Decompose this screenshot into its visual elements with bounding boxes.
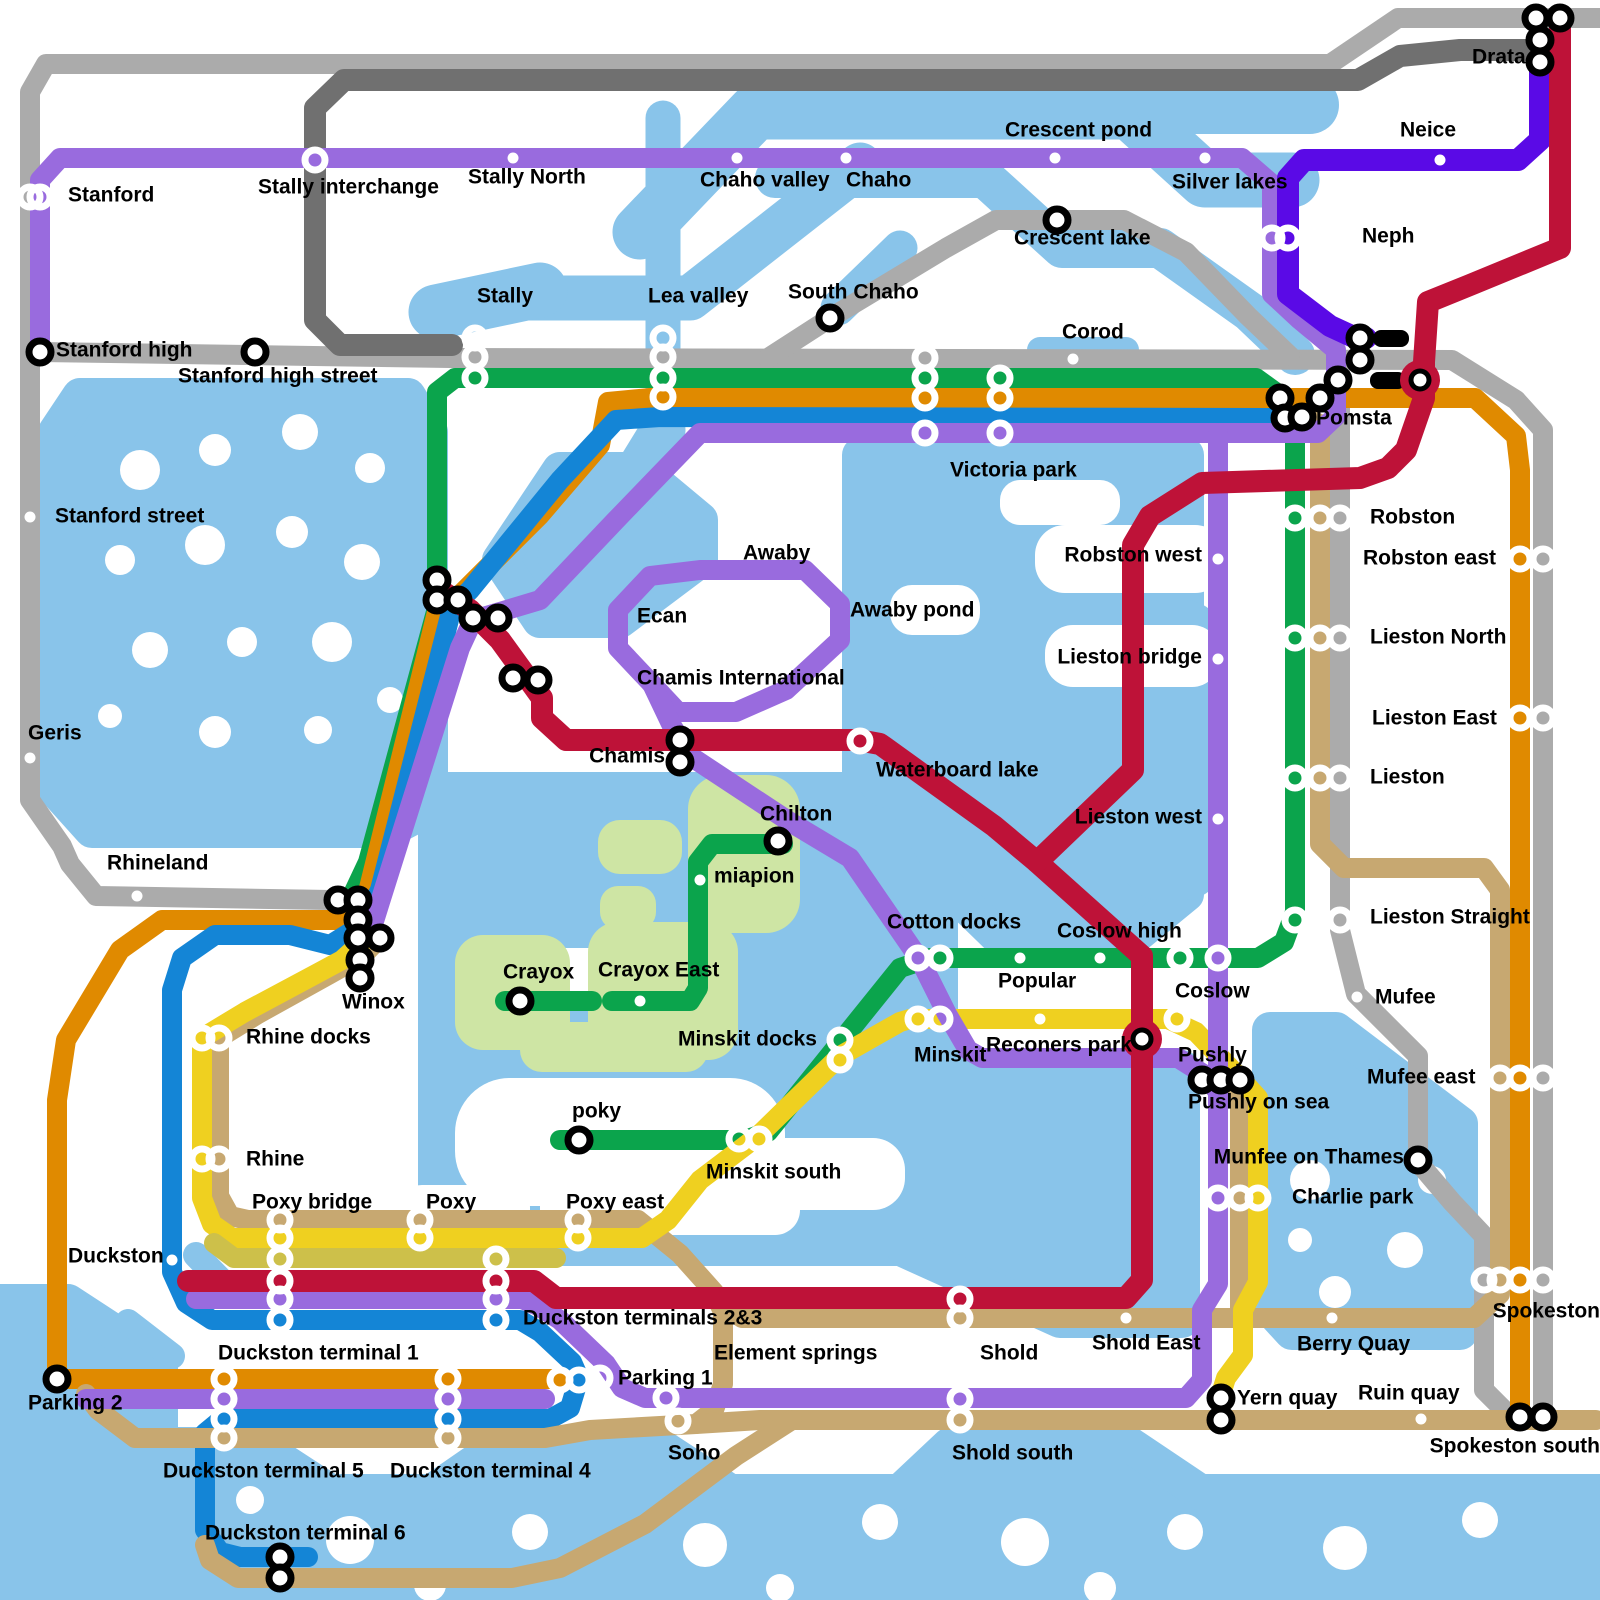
station-marker-interchange[interactable]	[1407, 1149, 1429, 1171]
station-marker-dot[interactable]	[1435, 155, 1446, 166]
station-label[interactable]: Duckston terminal 1	[218, 1342, 419, 1365]
station-label[interactable]: Spokeston	[1493, 1300, 1600, 1323]
station-marker-dot[interactable]	[1095, 953, 1106, 964]
station-label[interactable]: Parking 2	[28, 1392, 123, 1415]
water-island	[282, 414, 318, 450]
station-label[interactable]: Chamis International	[637, 667, 845, 690]
station-label[interactable]: Waterboard lake	[876, 759, 1039, 782]
water-island	[98, 704, 122, 728]
water-island	[185, 525, 225, 565]
station-label[interactable]: Reconers park	[986, 1034, 1132, 1057]
station-label[interactable]: Duckston terminal 6	[205, 1522, 406, 1545]
water-island	[236, 1486, 264, 1514]
station-marker-dot[interactable]	[1327, 1313, 1338, 1324]
station-label[interactable]: Parking 1	[618, 1367, 713, 1390]
station-marker-interchange[interactable]	[1525, 7, 1547, 29]
station-label[interactable]: Munfee on Thames	[1214, 1146, 1404, 1169]
water-island	[276, 516, 308, 548]
station-marker-interchange[interactable]	[502, 667, 524, 689]
water-island	[683, 1523, 727, 1567]
station-label[interactable]: Lieston	[1370, 766, 1445, 789]
station-marker-dot[interactable]	[1213, 654, 1224, 665]
station-marker-interchange[interactable]	[669, 751, 691, 773]
station-label[interactable]: Awaby pond	[850, 599, 974, 622]
station-marker-dot[interactable]	[1352, 992, 1363, 1003]
station-marker-interchange[interactable]	[527, 669, 549, 691]
station-label[interactable]: Stanford high street	[178, 365, 378, 388]
map-canvas: StanfordStally interchangeStally NorthCh…	[0, 0, 1600, 1600]
station-marker-interchange[interactable]	[29, 341, 51, 363]
station-label[interactable]: Lieston Straight	[1370, 906, 1530, 929]
water-island	[1319, 1276, 1351, 1308]
station-label[interactable]: Poxy	[426, 1191, 477, 1214]
water-island	[120, 450, 160, 490]
station-label[interactable]: Lieston East	[1372, 707, 1497, 730]
station-label[interactable]: Coslow	[1175, 980, 1250, 1003]
water-island	[105, 545, 135, 575]
station-label[interactable]: poky	[572, 1100, 621, 1123]
station-label[interactable]: Pomsta	[1316, 407, 1392, 430]
station-marker-interchange[interactable]	[1509, 1406, 1531, 1428]
station-label[interactable]: Popular	[998, 970, 1076, 993]
line-segment-tan	[696, 1420, 1596, 1424]
station-marker-dot[interactable]	[25, 753, 36, 764]
station-marker-interchange[interactable]	[269, 1567, 291, 1589]
station-label[interactable]: Chaho	[846, 169, 911, 192]
water-island	[199, 434, 231, 466]
station-label[interactable]: Poxy bridge	[252, 1191, 372, 1214]
station-label[interactable]: Element springs	[714, 1342, 877, 1365]
water-island	[199, 716, 231, 748]
station-label[interactable]: Lieston North	[1370, 626, 1507, 649]
station-marker-interchange[interactable]	[487, 607, 509, 629]
transit-map: StanfordStally interchangeStally NorthCh…	[0, 0, 1600, 1600]
station-label[interactable]: Chilton	[760, 803, 832, 826]
station-marker-dot[interactable]	[1213, 554, 1224, 565]
station-label[interactable]: Pushly	[1178, 1044, 1247, 1067]
water-island	[355, 453, 385, 483]
station-label[interactable]: Geris	[28, 722, 82, 745]
terminus-bar	[1373, 330, 1409, 347]
station-marker-interchange[interactable]	[462, 607, 484, 629]
station-marker-dot[interactable]	[25, 512, 36, 523]
station-label[interactable]: Soho	[668, 1442, 721, 1465]
station-label[interactable]: miapion	[714, 865, 795, 888]
station-label[interactable]: Ecan	[637, 605, 687, 628]
station-label[interactable]: Shold south	[952, 1442, 1073, 1465]
station-marker-dot[interactable]	[132, 891, 143, 902]
water-island	[227, 627, 257, 657]
station-label[interactable]: Pushly on sea	[1188, 1091, 1330, 1114]
station-label[interactable]: Stanford	[68, 184, 154, 207]
station-marker-dot[interactable]	[167, 1255, 178, 1266]
station-label[interactable]: Stanford high	[56, 339, 192, 362]
station-marker-roundel-inner[interactable]	[1411, 371, 1429, 389]
park-area	[600, 886, 656, 930]
station-label[interactable]: Yern quay	[1237, 1387, 1338, 1410]
station-marker-interchange[interactable]	[1229, 1069, 1251, 1091]
station-marker-interchange[interactable]	[1532, 1406, 1554, 1428]
station-marker-interchange[interactable]	[568, 1129, 590, 1151]
station-label[interactable]: Shold East	[1092, 1332, 1201, 1355]
station-label[interactable]: Charlie park	[1292, 1186, 1414, 1209]
water-island	[344, 544, 380, 580]
water-island	[1323, 1526, 1367, 1570]
park-area	[598, 820, 682, 874]
station-label[interactable]: Rhine docks	[246, 1026, 371, 1049]
station-label[interactable]: Rhine	[246, 1148, 304, 1171]
station-marker-interchange[interactable]	[46, 1368, 68, 1390]
station-marker-dot[interactable]	[635, 996, 646, 1007]
station-marker-dot[interactable]	[1200, 153, 1211, 164]
station-label[interactable]: Duckston	[68, 1245, 164, 1268]
station-label[interactable]: Minskit docks	[678, 1028, 817, 1051]
station-label[interactable]: Minskit south	[706, 1161, 841, 1184]
station-label[interactable]: Berry Quay	[1297, 1333, 1411, 1356]
station-marker-interchange[interactable]	[349, 967, 371, 989]
station-label[interactable]: South Chaho	[788, 281, 919, 304]
station-marker-interchange[interactable]	[1291, 406, 1313, 428]
station-label[interactable]: Stally North	[468, 166, 586, 189]
station-label[interactable]: Drata	[1472, 46, 1526, 69]
water-island	[512, 1514, 548, 1550]
station-marker-dot[interactable]	[841, 153, 852, 164]
station-label[interactable]: Neice	[1400, 119, 1456, 142]
water-island	[862, 1504, 898, 1540]
water-body	[0, 1302, 160, 1600]
station-marker-interchange[interactable]	[767, 830, 789, 852]
station-label[interactable]: Robston east	[1363, 547, 1496, 570]
station-label[interactable]: Poxy east	[566, 1191, 664, 1214]
station-label[interactable]: Mufee east	[1367, 1066, 1476, 1089]
station-label[interactable]: Mufee	[1375, 986, 1436, 1009]
station-marker-interchange[interactable]	[1549, 7, 1571, 29]
station-marker-dot[interactable]	[1213, 814, 1224, 825]
station-marker-interchange[interactable]	[1210, 1409, 1232, 1431]
station-label[interactable]: Shold	[980, 1342, 1038, 1365]
station-label[interactable]: Duckston terminal 4	[390, 1460, 591, 1483]
station-label[interactable]: Robston	[1370, 506, 1455, 529]
station-marker-interchange[interactable]	[1349, 349, 1371, 371]
water-island	[132, 632, 168, 668]
water-island	[312, 622, 352, 662]
station-label[interactable]: Spokeston south	[1430, 1435, 1600, 1458]
station-label[interactable]: Chamis	[589, 745, 665, 768]
station-label[interactable]: Chaho valley	[700, 169, 830, 192]
station-label[interactable]: Lieston bridge	[1057, 646, 1202, 669]
water-island	[1001, 1518, 1049, 1566]
station-marker-dot[interactable]	[1015, 953, 1026, 964]
station-label[interactable]: Stally interchange	[258, 176, 439, 199]
station-label[interactable]: Awaby	[743, 542, 811, 565]
water-island	[1288, 1228, 1312, 1252]
station-marker-dot[interactable]	[508, 153, 519, 164]
station-label[interactable]: Stally	[477, 285, 533, 308]
station-marker-interchange[interactable]	[244, 341, 266, 363]
station-label[interactable]: Ruin quay	[1358, 1382, 1460, 1405]
water-island	[1167, 1514, 1203, 1550]
station-marker-dot[interactable]	[1416, 1414, 1427, 1425]
station-marker-dot[interactable]	[695, 875, 706, 886]
station-label[interactable]: Corod	[1062, 321, 1124, 344]
water-island	[1462, 1502, 1498, 1538]
station-marker-interchange[interactable]	[1529, 51, 1551, 73]
station-label[interactable]: Crayox East	[598, 959, 719, 982]
station-label[interactable]: Victoria park	[950, 459, 1077, 482]
station-label[interactable]: Crescent lake	[1014, 227, 1151, 250]
station-label[interactable]: Crayox	[503, 961, 575, 984]
station-marker-dot[interactable]	[1068, 354, 1079, 365]
station-label[interactable]: Stanford street	[55, 505, 204, 528]
station-label[interactable]: Robston west	[1064, 544, 1202, 567]
station-marker-dot[interactable]	[1035, 1014, 1046, 1025]
water-island	[1387, 1232, 1423, 1268]
station-marker-interchange[interactable]	[369, 927, 391, 949]
station-label[interactable]: Lieston west	[1075, 806, 1202, 829]
water-island	[1000, 480, 1120, 525]
station-label[interactable]: Duckston terminals 2&3	[523, 1307, 762, 1330]
station-label[interactable]: Rhineland	[107, 852, 209, 875]
water-island	[377, 687, 403, 713]
station-label[interactable]: Coslow high	[1057, 920, 1182, 943]
station-label[interactable]: Lea valley	[648, 285, 749, 308]
station-marker-interchange[interactable]	[1327, 369, 1349, 391]
station-label[interactable]: Silver lakes	[1172, 171, 1288, 194]
station-marker-roundel-inner[interactable]	[1133, 1030, 1151, 1048]
station-label[interactable]: Cotton docks	[887, 911, 1021, 934]
water-island	[304, 716, 332, 744]
station-label[interactable]: Winox	[342, 991, 405, 1014]
station-label[interactable]: Crescent pond	[1005, 119, 1152, 142]
station-marker-interchange[interactable]	[509, 990, 531, 1012]
station-marker-dot[interactable]	[1121, 1313, 1132, 1324]
station-label[interactable]: Minskit	[914, 1044, 986, 1067]
station-marker-dot[interactable]	[1050, 153, 1061, 164]
station-label[interactable]: Duckston terminal 5	[163, 1460, 364, 1483]
station-marker-dot[interactable]	[732, 153, 743, 164]
station-label[interactable]: Neph	[1362, 225, 1415, 248]
station-marker-interchange[interactable]	[819, 307, 841, 329]
